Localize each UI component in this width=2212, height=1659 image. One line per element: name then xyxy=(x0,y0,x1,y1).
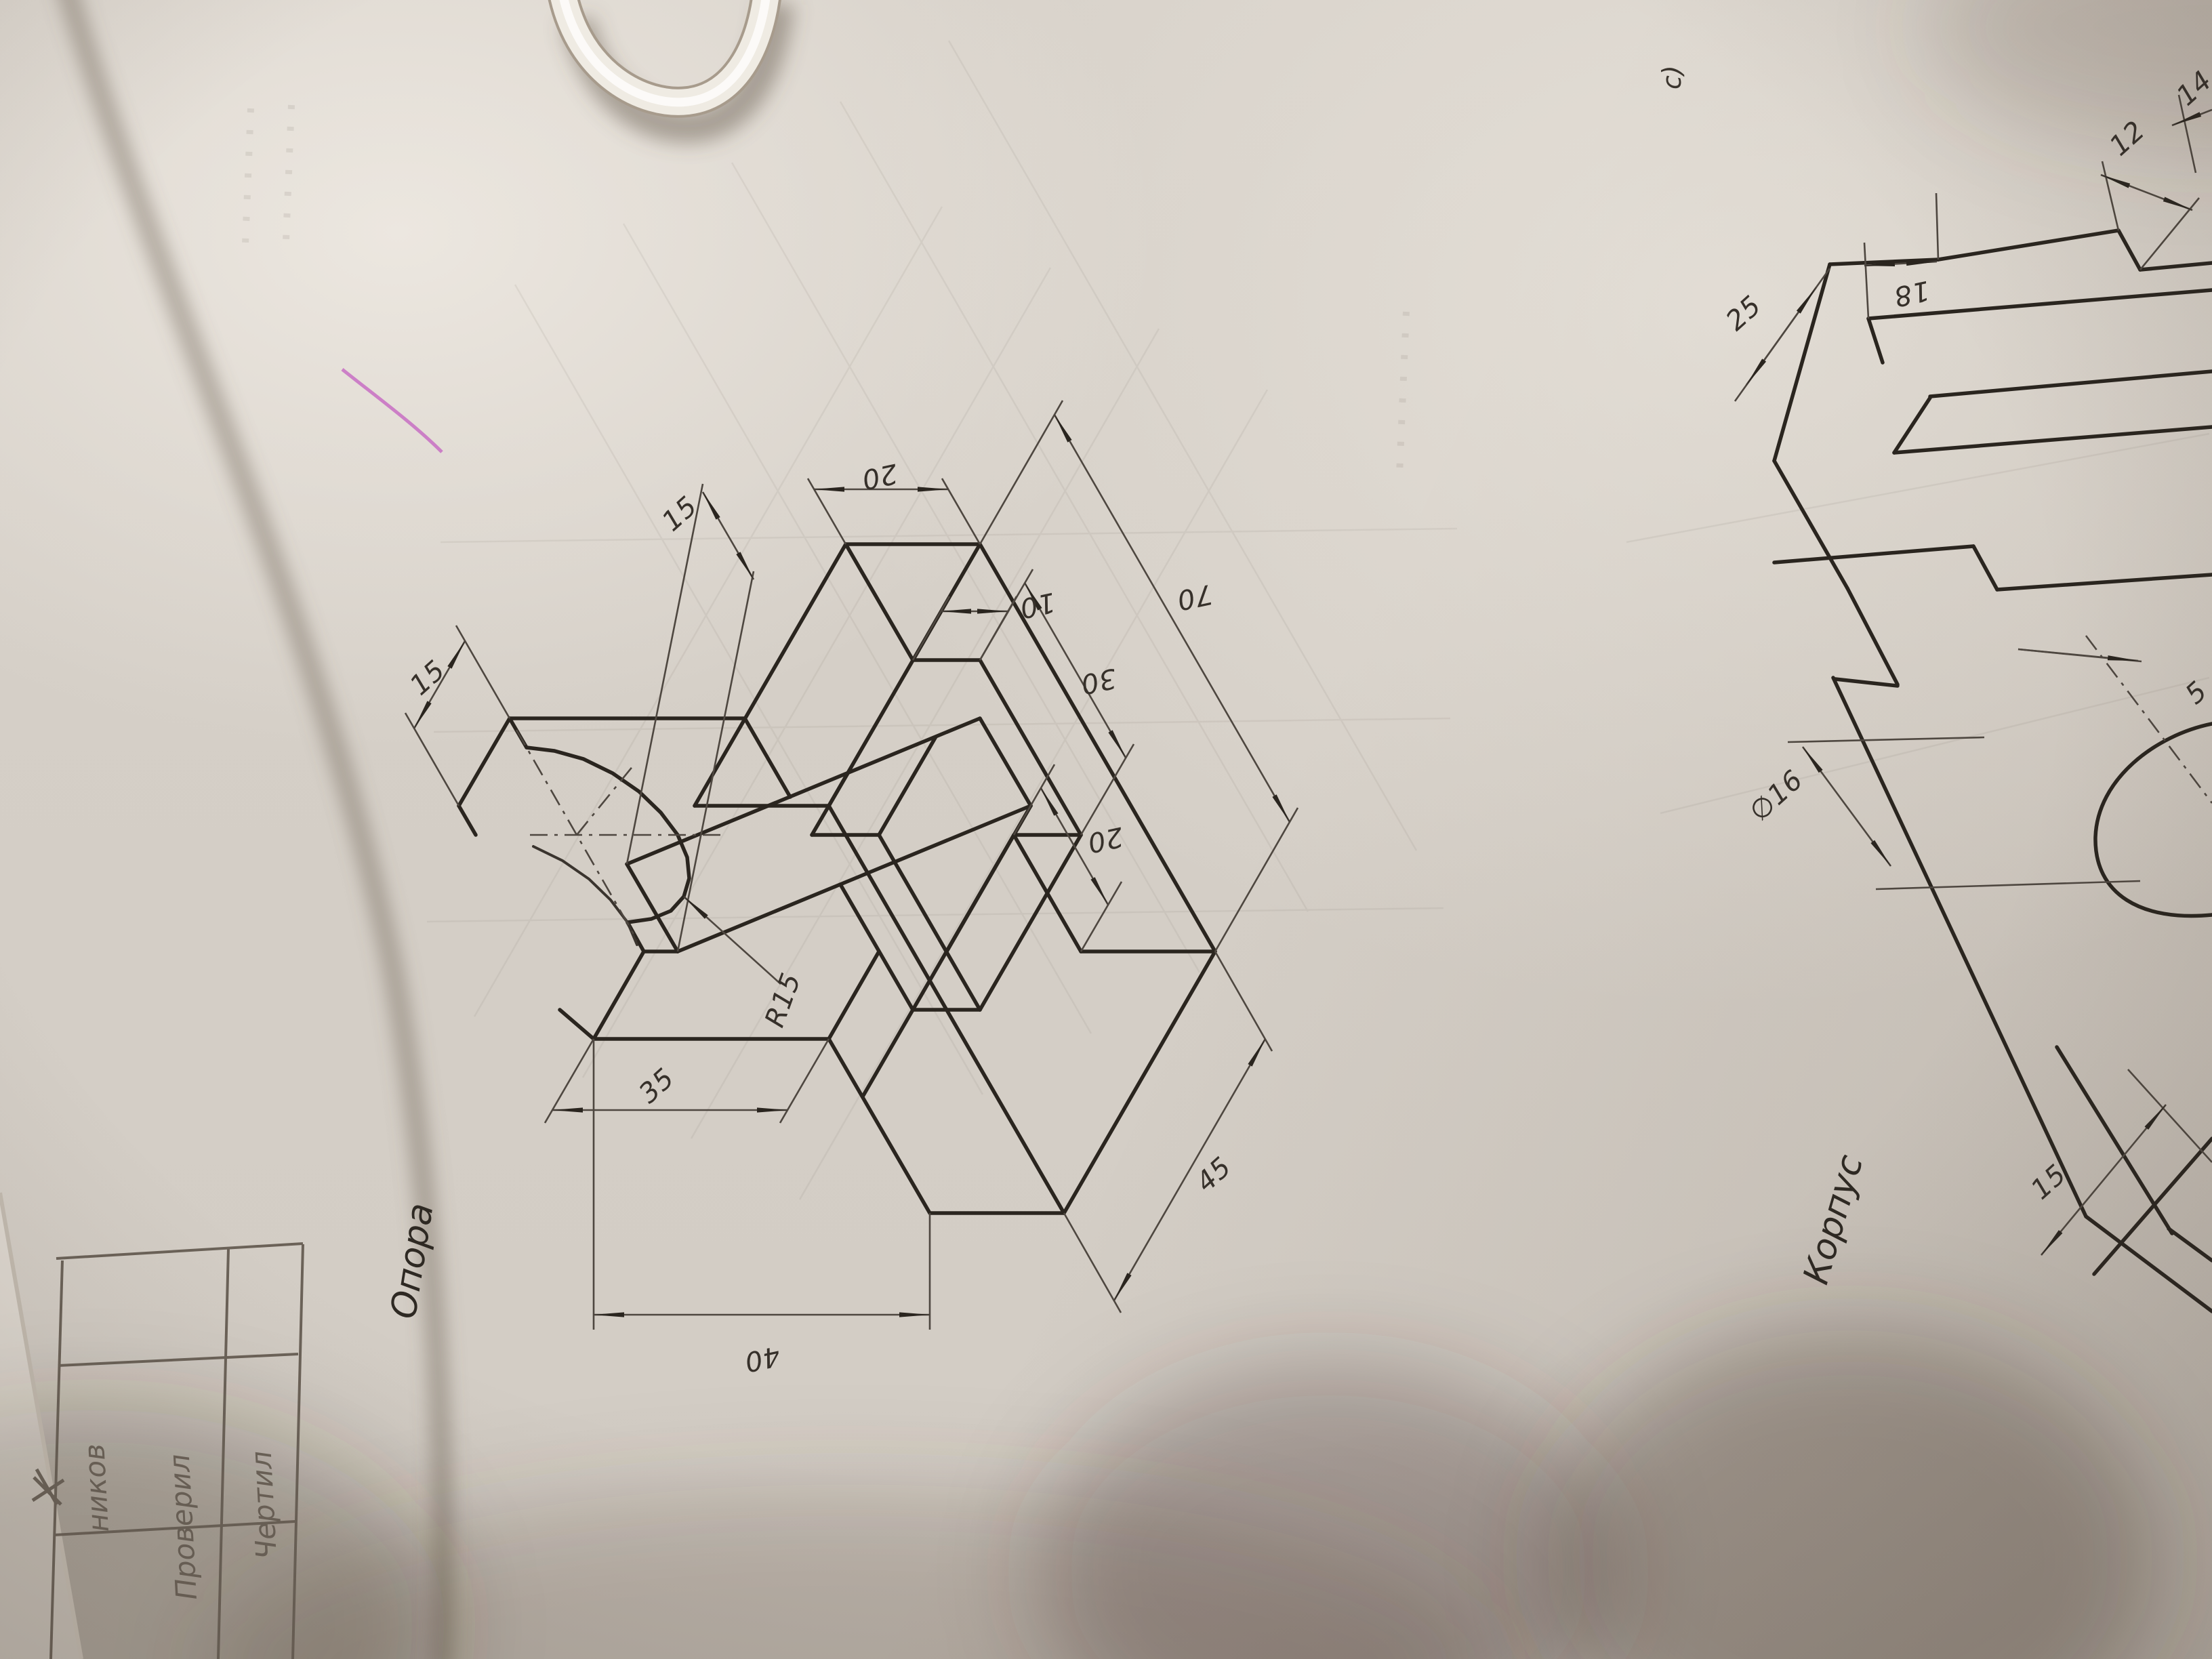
opora-dim-wall-thickness: 15 xyxy=(404,655,451,702)
opora-dim-arc-radius: R15 xyxy=(759,968,807,1031)
print-through-smudge xyxy=(245,105,1406,474)
korpus-hole-centerline xyxy=(2086,636,2212,803)
opora-dimension-lines xyxy=(414,415,1290,1315)
korpus-dim-25: 25 xyxy=(1720,290,1767,337)
opora-dim-near-segment: 20 xyxy=(1084,821,1126,859)
print-through-grid xyxy=(427,41,2209,1200)
opora-dim-overall-depth: 70 xyxy=(1174,578,1215,616)
opora-dim-step-depth: 10 xyxy=(1017,586,1058,624)
opora-dim-wall-width: 40 xyxy=(741,1340,783,1378)
opora-arch-back-arc xyxy=(533,846,637,945)
subfigure-label: с) xyxy=(1657,65,1687,89)
cable-shadow-curve xyxy=(64,0,443,1659)
figure-korpus: 25 18 12 14 ∅16 15 5 Корпус xyxy=(1720,65,2212,1311)
korpus-dimension-lines xyxy=(1746,110,2212,1255)
korpus-dim-15: 15 xyxy=(2025,1159,2072,1206)
opora-dim-rib-thickness: 15 xyxy=(656,491,703,538)
pink-pen-mark xyxy=(342,369,442,452)
korpus-dim-hole: ∅16 xyxy=(1744,764,1809,828)
opora-centerlines xyxy=(516,730,724,940)
photo-of-drawing-sheet: 15 15 20 10 30 70 20 45 40 35 R15 Опора xyxy=(0,0,2212,1659)
korpus-hole-ellipse xyxy=(2095,724,2212,916)
opora-dim-wall-height: 35 xyxy=(633,1063,680,1110)
white-cable xyxy=(562,0,778,127)
title-row-chertil: Чертил xyxy=(245,1450,283,1560)
opora-dim-channel-length: 30 xyxy=(1078,662,1119,700)
opora-dim-base-height: 20 xyxy=(859,457,900,495)
korpus-dim-5-partial: 5 xyxy=(2179,675,2212,710)
korpus-figure-label: Корпус xyxy=(1796,1150,1871,1288)
title-row-name: ников xyxy=(77,1443,115,1533)
figure-opora: 15 15 20 10 30 70 20 45 40 35 R15 Опора xyxy=(384,401,1298,1378)
korpus-dim-18: 18 xyxy=(1891,274,1932,312)
korpus-part-edges xyxy=(1774,230,2212,1311)
drawing-canvas: 15 15 20 10 30 70 20 45 40 35 R15 Опора xyxy=(0,0,2212,1659)
opora-part-edges xyxy=(459,544,1215,1213)
